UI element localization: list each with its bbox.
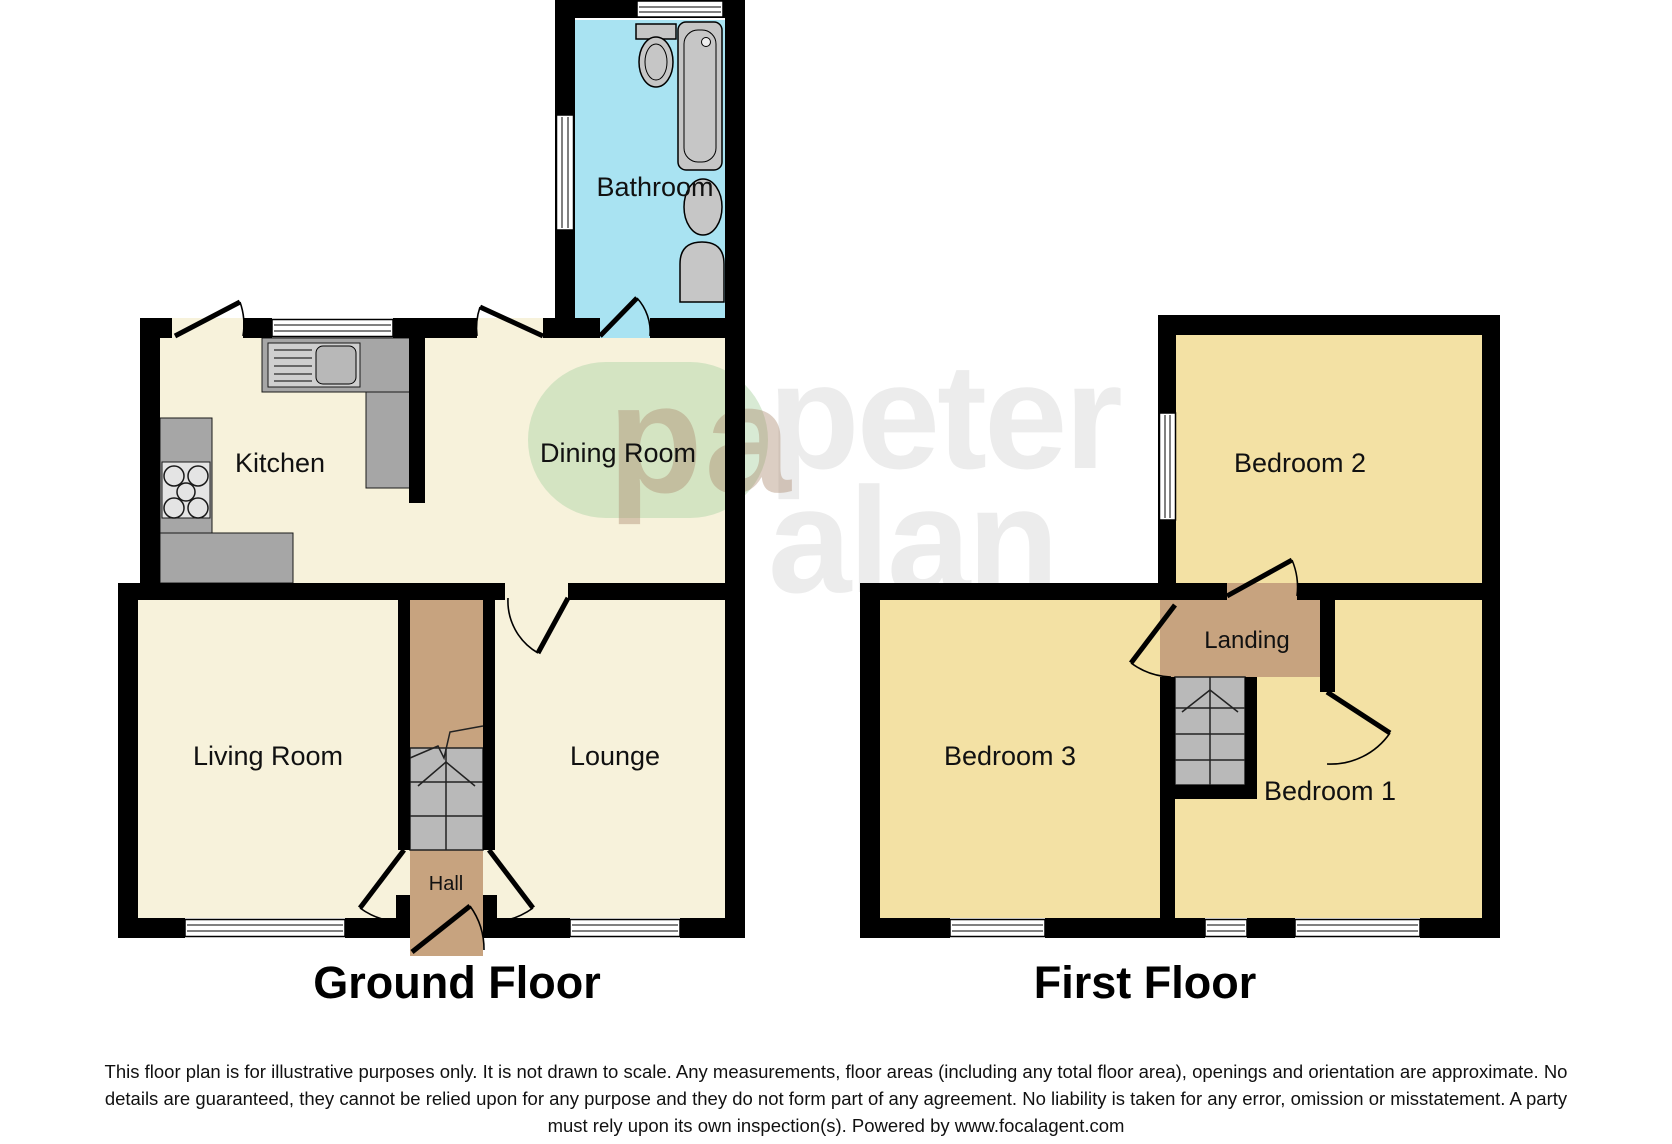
living-room-window [185,920,345,937]
bedroom1-large-window [1295,920,1420,937]
label-kitchen: Kitchen [235,448,325,478]
lounge-window [570,920,680,937]
disclaimer-line-3: must rely upon its own inspection(s). Po… [0,1112,1672,1139]
label-living-room: Living Room [193,741,343,771]
shower-tray [680,242,724,302]
disclaimer-line-2: details are guaranteed, they cannot be r… [0,1085,1672,1112]
label-hall: Hall [429,873,463,895]
bedroom1-small-window [1205,920,1247,937]
first-floor-stairs [1175,677,1245,785]
label-landing: Landing [1204,627,1289,654]
kitchen-sink-bowl [316,346,356,384]
label-lounge: Lounge [570,741,660,771]
kitchen-counter-bottom [160,533,293,583]
floor-plan-drawing: peter alan pa [0,0,1672,1144]
label-bedroom-1: Bedroom 1 [1264,776,1396,806]
label-bathroom: Bathroom [596,172,713,202]
floor-plan-page: peter alan pa [0,0,1672,1144]
first-floor-title: First Floor [1034,957,1257,1008]
disclaimer-text: This floor plan is for illustrative purp… [0,1058,1672,1139]
bedroom3-window [950,920,1045,937]
watermark-brand: peter alan [768,332,1121,624]
bathtub [678,22,722,170]
bedroom2-window [1160,413,1176,520]
bathroom-top-window [637,1,723,17]
bathtub-tap [702,38,711,47]
disclaimer-line-1: This floor plan is for illustrative purp… [0,1058,1672,1085]
lounge-door-opening [505,583,568,600]
ground-floor-title: Ground Floor [313,957,600,1008]
ground-floor-plan: pa [118,0,793,1008]
bathroom-left-window [557,115,574,230]
label-bedroom-2: Bedroom 2 [1234,448,1366,478]
label-dining-room: Dining Room [540,438,696,468]
kitchen-hob [162,462,210,518]
label-bedroom-3: Bedroom 3 [944,741,1076,771]
kitchen-window [272,320,393,337]
